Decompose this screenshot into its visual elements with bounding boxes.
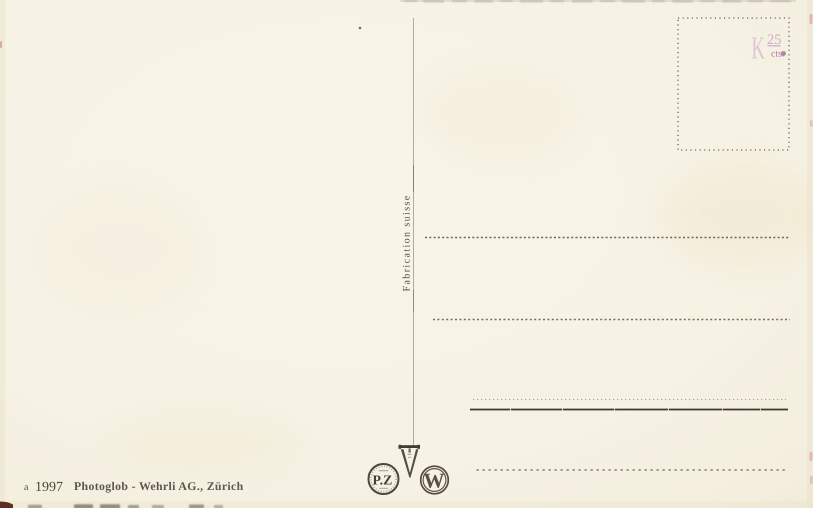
svg-text:P.Z: P.Z	[373, 473, 393, 488]
svg-text:W: W	[424, 469, 445, 493]
svg-text:K: K	[752, 30, 765, 66]
svg-text:1997: 1997	[35, 480, 63, 495]
svg-text:Fabrication suisse: Fabrication suisse	[402, 194, 413, 291]
svg-text:a: a	[24, 482, 29, 493]
svg-text:Photoglob - Wehrli AG., Zürich: Photoglob - Wehrli AG., Zürich	[74, 479, 244, 493]
